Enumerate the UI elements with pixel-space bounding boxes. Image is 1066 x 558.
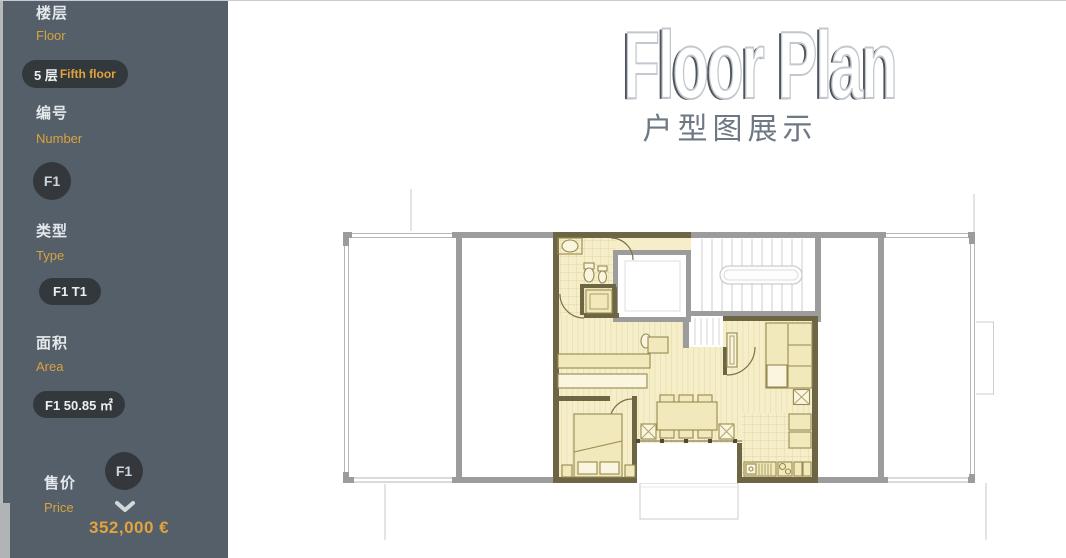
price-unit-badge[interactable]: F1 xyxy=(105,452,143,490)
price-label-zh: 售价 xyxy=(44,472,76,493)
floor-badge-en: Fifth floor xyxy=(60,67,116,81)
scrollbar-track xyxy=(0,0,3,558)
type-label-zh: 类型 xyxy=(36,220,68,241)
top-border-line xyxy=(0,0,1066,1)
type-badge[interactable]: F1 T1 xyxy=(39,278,101,305)
sidebar: 楼层 Floor 5 层 Fifth floor 编号 Number F1 类型… xyxy=(0,0,228,558)
balcony-right xyxy=(976,322,994,394)
unit-f1-region[interactable] xyxy=(553,232,818,483)
page: { "header": { "title": "Floor Plan", "su… xyxy=(0,0,1066,558)
floor-label-zh: 楼层 xyxy=(36,2,68,23)
type-label-en: Type xyxy=(36,248,64,263)
number-badge[interactable]: F1 xyxy=(33,162,71,200)
floor-badge[interactable]: 5 层 Fifth floor xyxy=(22,60,128,88)
floor-badge-zh: 5 层 xyxy=(34,65,58,84)
area-label-zh: 面积 xyxy=(36,332,68,353)
unit-f1 xyxy=(553,232,818,483)
scrollbar-thumb[interactable] xyxy=(0,503,10,558)
price-label-en: Price xyxy=(44,500,74,515)
page-title: Floor Plan xyxy=(623,18,895,114)
area-label-en: Area xyxy=(36,359,63,374)
balcony-bottom xyxy=(640,483,738,519)
number-label-zh: 编号 xyxy=(36,102,68,123)
page-header: Floor Plan xyxy=(540,18,870,114)
number-label-en: Number xyxy=(36,131,82,146)
area-badge[interactable]: F1 50.85 ㎡ xyxy=(33,391,125,418)
floor-label-en: Floor xyxy=(36,28,66,43)
page-subtitle: 户型图展示 xyxy=(600,104,860,148)
price-value: 352,000 € xyxy=(89,518,169,538)
chevron-down-icon[interactable] xyxy=(114,501,136,513)
